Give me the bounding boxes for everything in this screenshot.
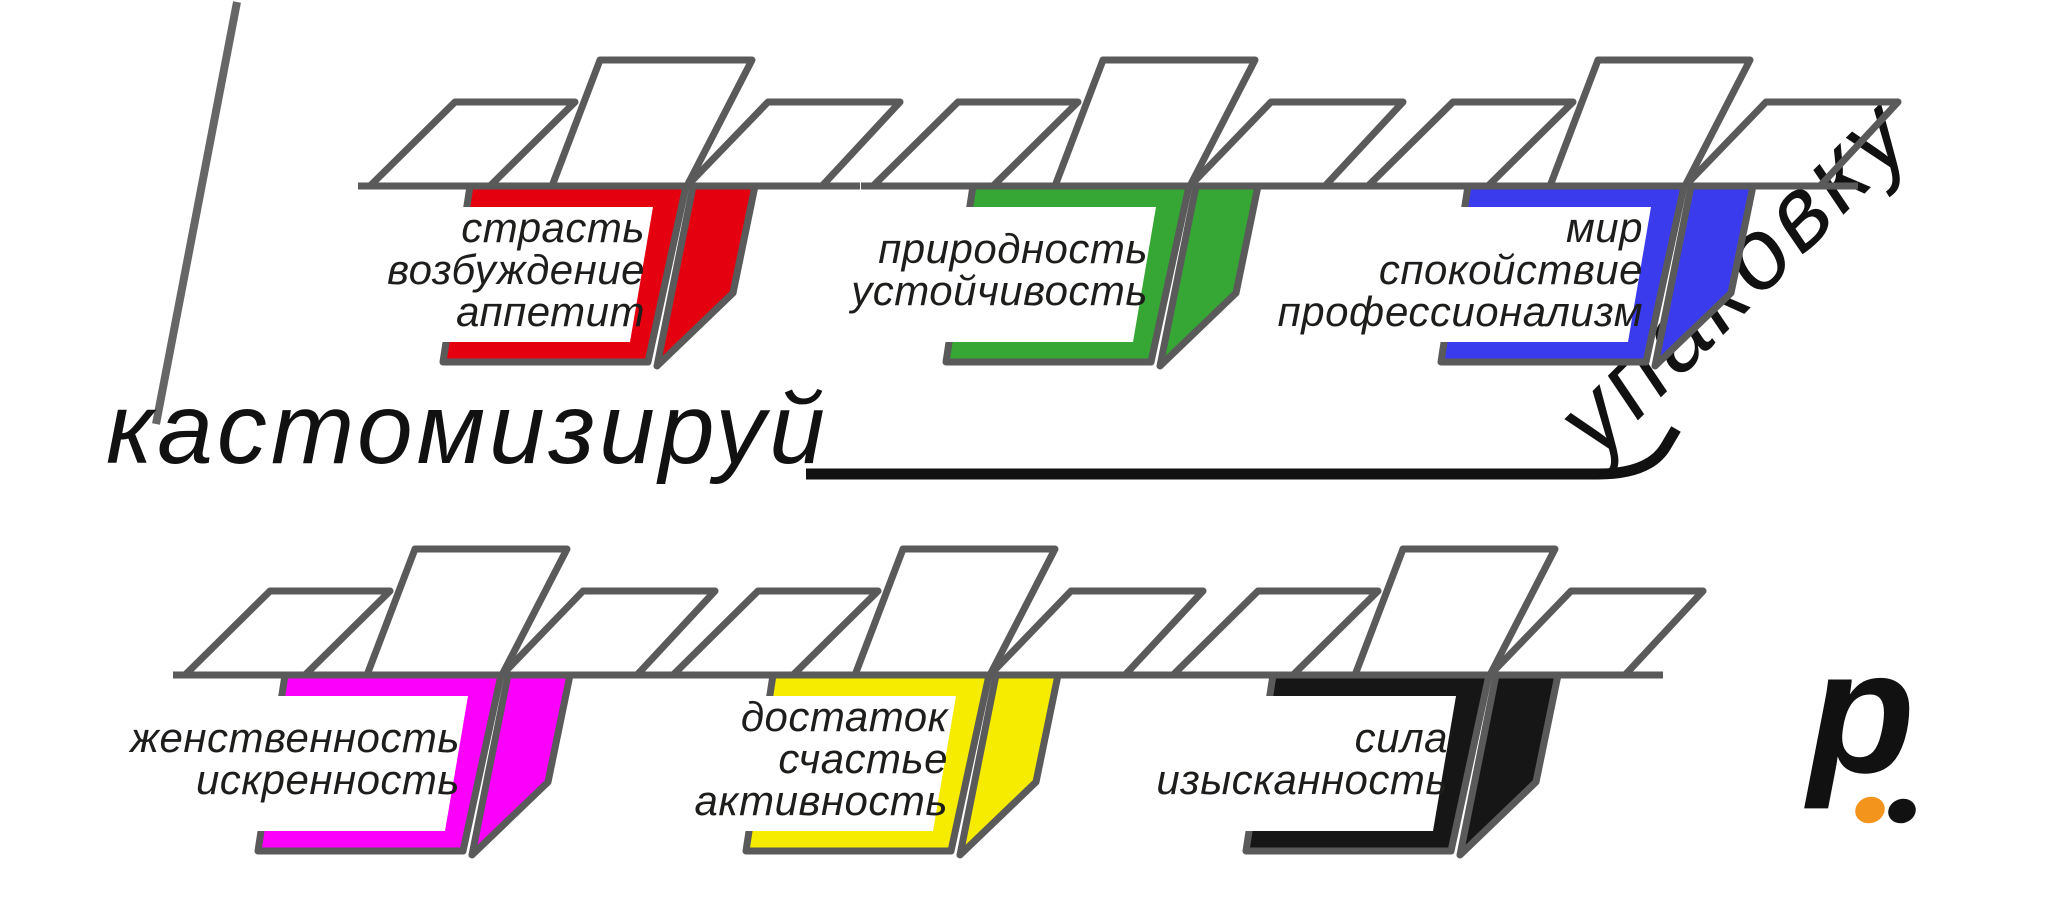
box-black: силаизысканность xyxy=(1163,525,1723,870)
box-label-line: активность xyxy=(695,777,948,824)
box-back-flap xyxy=(367,549,567,675)
box-label-line: природность xyxy=(878,225,1148,272)
box-graphic: женственностьискренность xyxy=(175,525,735,870)
box-back-flap xyxy=(1355,549,1555,675)
box-back-flap xyxy=(1055,60,1255,186)
box-blue: мирспокойствиепрофессионализм xyxy=(1358,36,1918,381)
box-left-flap xyxy=(1368,102,1573,186)
box-right-flap xyxy=(1490,591,1703,675)
logo-letter: p xyxy=(1808,625,1915,800)
box-label: женственностьискренность xyxy=(128,714,460,803)
box-label-line: сила xyxy=(1355,714,1448,761)
box-yellow: достатоксчастьеактивность xyxy=(663,525,1223,870)
box-left-flap xyxy=(1173,591,1378,675)
headline-underline xyxy=(806,429,1676,474)
box-label-line: устойчивость xyxy=(848,267,1148,314)
box-label-line: изысканность xyxy=(1156,756,1448,803)
box-left-flap xyxy=(873,102,1078,186)
box-label-line: искренность xyxy=(196,756,460,803)
stage: кастомизируй упаковку страстьвозбуждение… xyxy=(0,0,2048,913)
box-magenta: женственностьискренность xyxy=(175,525,735,870)
box-graphic: страстьвозбуждениеаппетит xyxy=(360,36,920,381)
headline-word-left: кастомизируй xyxy=(106,381,829,477)
diagonal-accent-line xyxy=(156,2,237,424)
box-label-line: аппетит xyxy=(456,288,645,335)
box-back-flap xyxy=(1550,60,1750,186)
box-graphic: мирспокойствиепрофессионализм xyxy=(1358,36,1918,381)
box-back-flap xyxy=(855,549,1055,675)
box-left-flap xyxy=(673,591,878,675)
box-label-line: достаток xyxy=(741,693,950,740)
box-left-flap xyxy=(185,591,390,675)
box-label-line: счастье xyxy=(778,735,948,782)
box-graphic: силаизысканность xyxy=(1163,525,1723,870)
box-label-line: страсть xyxy=(461,204,645,251)
box-left-flap xyxy=(370,102,575,186)
box-label-line: возбуждение xyxy=(387,246,645,293)
box-label-line: мир xyxy=(1566,204,1643,251)
box-graphic: достатоксчастьеактивность xyxy=(663,525,1223,870)
box-red: страстьвозбуждениеаппетит xyxy=(360,36,920,381)
box-back-flap xyxy=(552,60,752,186)
box-label-line: женственность xyxy=(128,714,460,761)
box-label-line: профессионализм xyxy=(1278,288,1643,335)
box-label: природностьустойчивость xyxy=(848,225,1148,314)
box-label-line: спокойствие xyxy=(1379,246,1643,293)
box-right-flap xyxy=(1685,102,1898,186)
logo: p xyxy=(1800,625,2020,855)
